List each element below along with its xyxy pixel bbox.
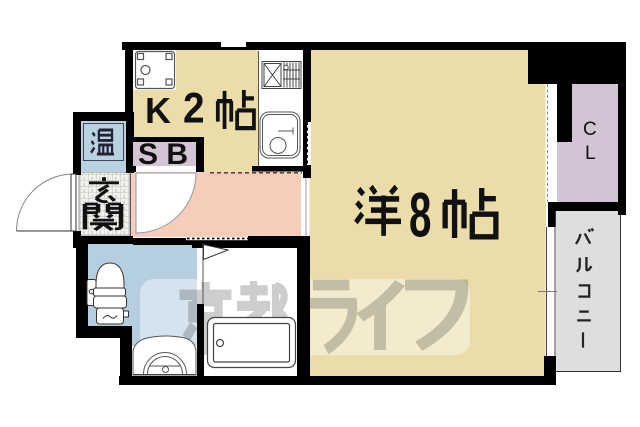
svg-text:L: L bbox=[585, 143, 596, 164]
svg-text:8: 8 bbox=[409, 181, 431, 251]
svg-text:C: C bbox=[583, 119, 597, 140]
svg-text:S B: S B bbox=[138, 138, 188, 171]
svg-text:2: 2 bbox=[183, 84, 205, 132]
svg-text:K: K bbox=[145, 90, 171, 131]
